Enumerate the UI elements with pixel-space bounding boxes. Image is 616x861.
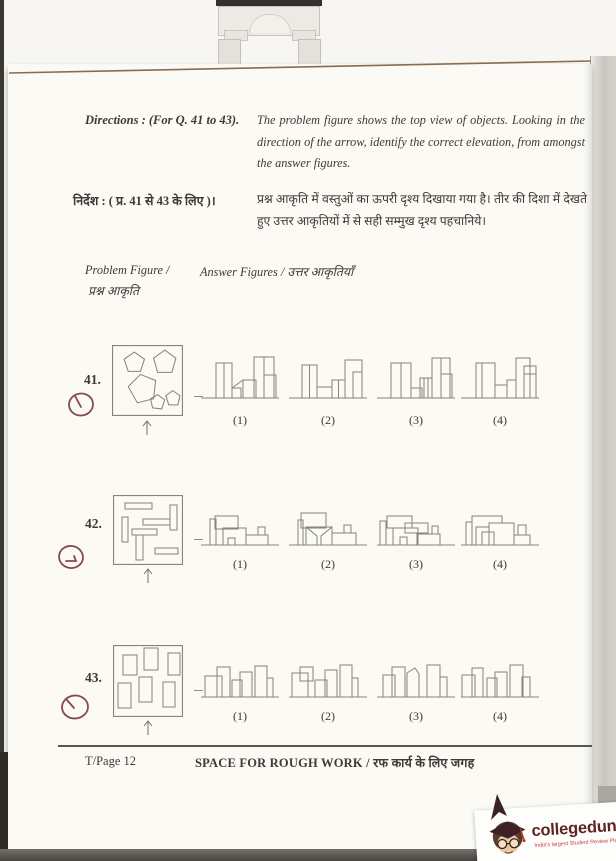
option-label-43-4: (4) (460, 709, 540, 724)
problem-figure-header-en: Problem Figure / (85, 263, 169, 278)
option-label-42-2: (2) (288, 557, 368, 572)
problem-figure-43 (113, 645, 183, 717)
up-arrow-icon (142, 567, 154, 584)
option-label-43-2: (2) (288, 709, 368, 724)
answer-figure-43-2 (288, 651, 368, 701)
directions-text-en: The problem figure shows the top view of… (257, 110, 585, 175)
answer-figure-43-3 (376, 651, 456, 701)
answer-figure-43-1 (200, 651, 280, 701)
option-label-42-3: (3) (376, 557, 456, 572)
up-arrow-icon (141, 419, 153, 436)
answer-figure-41-1 (200, 352, 280, 402)
page-stack-edge (590, 56, 616, 852)
collegedunia-brand-text: collegedunia (531, 816, 616, 841)
footer-page-number: T/Page 12 (85, 754, 136, 769)
option-label-41-2: (2) (288, 413, 368, 428)
problem-figure-42 (113, 495, 183, 565)
answer-figure-41-2 (288, 352, 368, 402)
problem-figure-41 (112, 345, 183, 416)
answer-figure-42-3 (376, 499, 456, 549)
scan-left-edge-bottom (0, 752, 8, 861)
answer-figure-41-4 (460, 352, 540, 402)
option-label-43-3: (3) (376, 709, 456, 724)
pen-circle-mark-43 (58, 692, 92, 722)
cap-corner-shape (488, 792, 510, 822)
scan-left-edge (0, 0, 4, 861)
question-number-43: 43. (85, 670, 102, 686)
exam-page: Directions : (For Q. 41 to 43). The prob… (8, 64, 592, 850)
directions-label-hi: निर्देश : ( प्र. 41 से 43 के लिए )। (73, 192, 216, 209)
answer-figures-header: Answer Figures / उत्तर आकृतियाँ (200, 263, 353, 280)
pen-circle-mark-42 (55, 542, 89, 572)
scanned-exam-page: Directions : (For Q. 41 to 43). The prob… (0, 0, 616, 861)
option-label-41-4: (4) (460, 413, 540, 428)
answer-figure-43-4 (460, 651, 540, 701)
option-label-41-1: (1) (200, 413, 280, 428)
question-number-41: 41. (84, 372, 101, 388)
option-label-42-4: (4) (460, 557, 540, 572)
footer-rough-work-label: SPACE FOR ROUGH WORK / रफ कार्य के लिए ज… (195, 754, 474, 771)
answer-figure-42-2 (288, 499, 368, 549)
answer-figure-42-1 (200, 499, 280, 549)
option-label-41-3: (3) (376, 413, 456, 428)
question-number-42: 42. (85, 516, 102, 532)
answer-figure-41-3 (376, 352, 456, 402)
option-label-42-1: (1) (200, 557, 280, 572)
answer-figure-42-4 (460, 499, 540, 549)
up-arrow-icon (142, 719, 154, 736)
problem-figure-header-hi: प्रश्न आकृति (88, 282, 139, 299)
pen-circle-mark-41 (64, 390, 98, 420)
option-label-43-1: (1) (200, 709, 280, 724)
directions-label-en: Directions : (For Q. 41 to 43). (85, 113, 239, 128)
footer-rule (58, 745, 592, 747)
directions-text-hi: प्रश्न आकृति में वस्तुओं का ऊपरी दृश्य द… (257, 189, 587, 232)
clipboard-clip (216, 0, 322, 70)
